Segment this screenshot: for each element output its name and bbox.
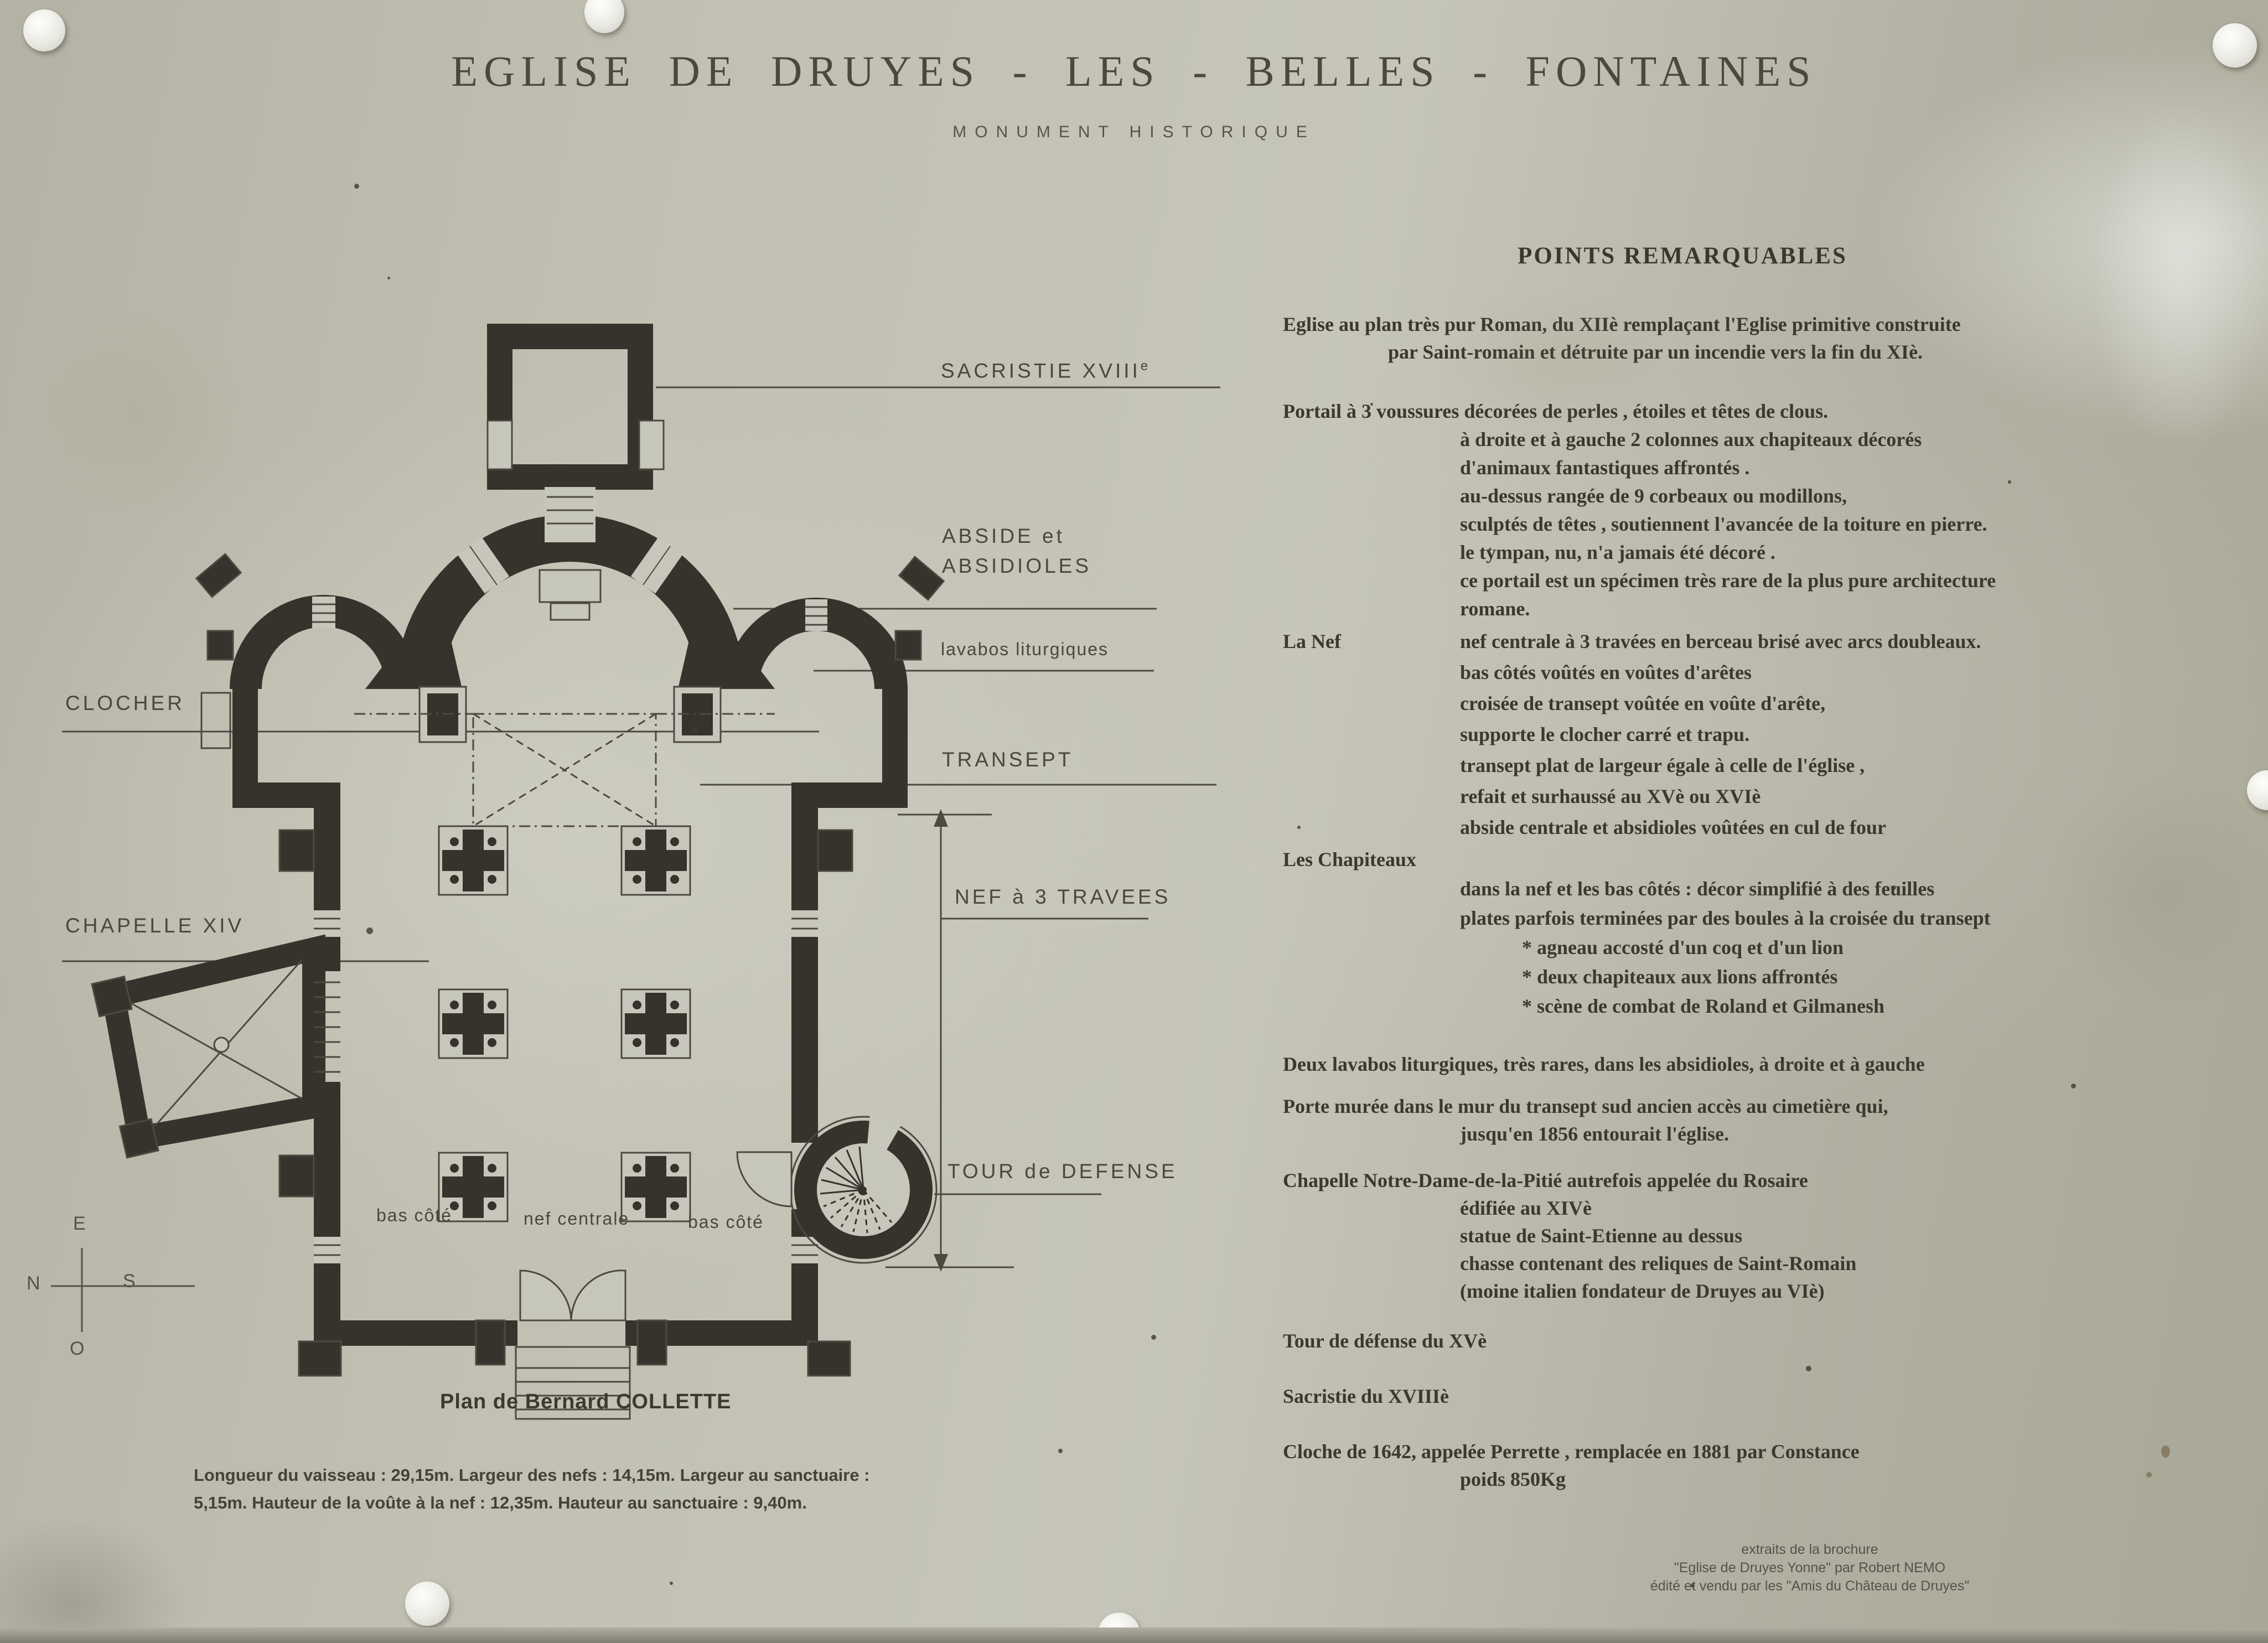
speck [1589, 1180, 1593, 1184]
points-section-label: Les Chapiteaux [1283, 848, 1416, 871]
points-line: bas côtés voûtés en voûtes d'arêtes [1460, 661, 1752, 684]
pier [622, 989, 690, 1058]
points-line: Eglise au plan très pur Roman, du XIIè r… [1283, 313, 1961, 336]
points-line: dans la nef et les bas côtés : décor sim… [1460, 877, 1934, 900]
compass-n: N [27, 1273, 40, 1294]
points-line: au-dessus rangée de 9 corbeaux ou modill… [1460, 484, 1847, 507]
stain [2048, 775, 2268, 1007]
label-nef: NEF à 3 TRAVEES [955, 885, 1171, 909]
altar [540, 570, 600, 620]
nave-piers [439, 826, 690, 1221]
speck [366, 927, 373, 934]
points-line: croisée de transept voûtée en voûte d'ar… [1460, 692, 1825, 715]
points-section-label: La Nef [1283, 630, 1341, 653]
screw-cap [23, 9, 65, 51]
label-nef-centrale: nef centrale [524, 1209, 629, 1229]
label-clocher: CLOCHER [65, 692, 185, 715]
label-sacristie-text: SACRISTIE XVIII [941, 359, 1141, 382]
points-line: Chapelle Notre-Dame-de-la-Pitié autrefoi… [1283, 1169, 1808, 1192]
points-line: transept plat de largeur égale à celle d… [1460, 754, 1865, 777]
chapel [92, 949, 340, 1158]
transept-porch [201, 693, 230, 748]
points-line: abside centrale et absidioles voûtées en… [1460, 816, 1886, 839]
pier [439, 989, 508, 1058]
points-line: par Saint-romain et détruite par un ince… [1388, 340, 1923, 364]
points-line: refait et surhaussé au XVè ou XVIè [1460, 785, 1760, 808]
points-line: édifiée au XIVè [1460, 1196, 1592, 1220]
pier [439, 826, 508, 895]
points-line: (moine italien fondateur de Druyes au VI… [1460, 1279, 1825, 1303]
panel-bottom-edge [0, 1628, 2268, 1643]
points-heading: POINTS REMARQUABLES [1361, 242, 2003, 269]
label-lavabos: lavabos liturgiques [941, 639, 1109, 660]
footer-line-1: extraits de la brochure [1489, 1541, 2131, 1559]
footer: extraits de la brochure "Eglise de Druye… [1489, 1541, 2131, 1595]
points-line: statue de Saint-Etienne au dessus [1460, 1224, 1742, 1247]
points-line: jusqu'en 1856 entourait l'église. [1460, 1122, 1729, 1146]
speck [1806, 1366, 1811, 1371]
points-line: supporte le clocher carré et trapu. [1460, 723, 1749, 746]
speck [693, 728, 698, 733]
pier [622, 826, 690, 895]
points-line: Deux lavabos liturgiques, très rares, da… [1283, 1053, 1925, 1076]
speck [1058, 1449, 1063, 1453]
label-bas-cote-right: bas côté [688, 1212, 764, 1232]
defense-tower [737, 1113, 936, 1263]
speck [1892, 885, 1896, 890]
dimensions-line-1: Longueur du vaisseau : 29,15m. Largeur d… [194, 1465, 1013, 1485]
points-line: Cloche de 1642, appelée Perrette , rempl… [1283, 1440, 1860, 1463]
label-chapelle: CHAPELLE XIV [65, 914, 244, 937]
footer-line-3: édité et vendu par les "Amis du Château … [1489, 1577, 2131, 1595]
points-line: ce portail est un spécimen très rare de … [1460, 569, 1996, 592]
points-line: à droite et à gauche 2 colonnes aux chap… [1460, 428, 1922, 451]
label-bas-cote-left: bas côté [376, 1205, 452, 1226]
points-line: d'animaux fantastiques affrontés . [1460, 456, 1749, 479]
speck [2008, 480, 2011, 484]
label-transept: TRANSEPT [942, 748, 1073, 771]
points-line: Portail à 3 voussures décorées de perles… [1283, 400, 1828, 423]
speck [1151, 1335, 1156, 1340]
compass-s: S [123, 1271, 136, 1292]
points-line: * agneau accosté d'un coq et d'un lion [1522, 936, 1844, 959]
speck [354, 184, 359, 189]
points-line: plates parfois terminées par des boules … [1460, 906, 1991, 930]
speck [2146, 1472, 2152, 1478]
label-sacristie: SACRISTIE XVIIIe [941, 359, 1151, 382]
speck [1297, 826, 1301, 829]
speck [1489, 548, 1492, 551]
label-sacristie-sup: e [1141, 359, 1151, 374]
points-line: Sacristie du XVIIIè [1283, 1385, 1449, 1408]
points-line: * scène de combat de Roland et Gilmanesh [1522, 994, 1884, 1018]
points-line: sculptés de têtes , soutiennent l'avancé… [1460, 512, 1987, 536]
points-line: Porte murée dans le mur du transept sud … [1283, 1095, 1888, 1118]
speck [1370, 403, 1373, 406]
footer-line-2: "Eglise de Druyes Yonne" par Robert NEMO [1489, 1559, 2131, 1577]
screw-cap [2213, 23, 2257, 68]
dimensions-line-2: 5,15m. Hauteur de la voûte à la nef : 12… [194, 1493, 1013, 1513]
points-line: nef centrale à 3 travées en berceau bris… [1460, 630, 1981, 653]
compass-o: O [70, 1338, 84, 1360]
label-abside-2: ABSIDIOLES [942, 554, 1091, 578]
speck [670, 1582, 673, 1585]
points-line: le tympan, nu, n'a jamais été décoré . [1460, 541, 1775, 564]
speck [2161, 1445, 2170, 1458]
label-abside-1: ABSIDE et [942, 525, 1065, 548]
label-tour: TOUR de DEFENSE [947, 1160, 1178, 1183]
speck [1691, 1584, 1695, 1588]
screw-cap [405, 1582, 449, 1626]
points-line: chasse contenant des reliques de Saint-R… [1460, 1252, 1856, 1275]
points-line: Tour de défense du XVè [1283, 1329, 1487, 1352]
compass-e: E [73, 1213, 86, 1235]
points-line: romane. [1460, 597, 1530, 620]
speck [2071, 1084, 2076, 1089]
pier [622, 1153, 690, 1221]
points-line: poids 850Kg [1460, 1468, 1566, 1491]
glare-reflection [2092, 100, 2268, 459]
monument-information-panel: EGLISE DE DRUYES - LES - BELLES - FONTAI… [0, 0, 2268, 1643]
speck [387, 277, 390, 279]
screw-cap [2247, 770, 2268, 810]
plan-caption: Plan de Bernard COLLETTE [440, 1390, 732, 1414]
points-line: * deux chapiteaux aux lions affrontés [1522, 965, 1837, 988]
